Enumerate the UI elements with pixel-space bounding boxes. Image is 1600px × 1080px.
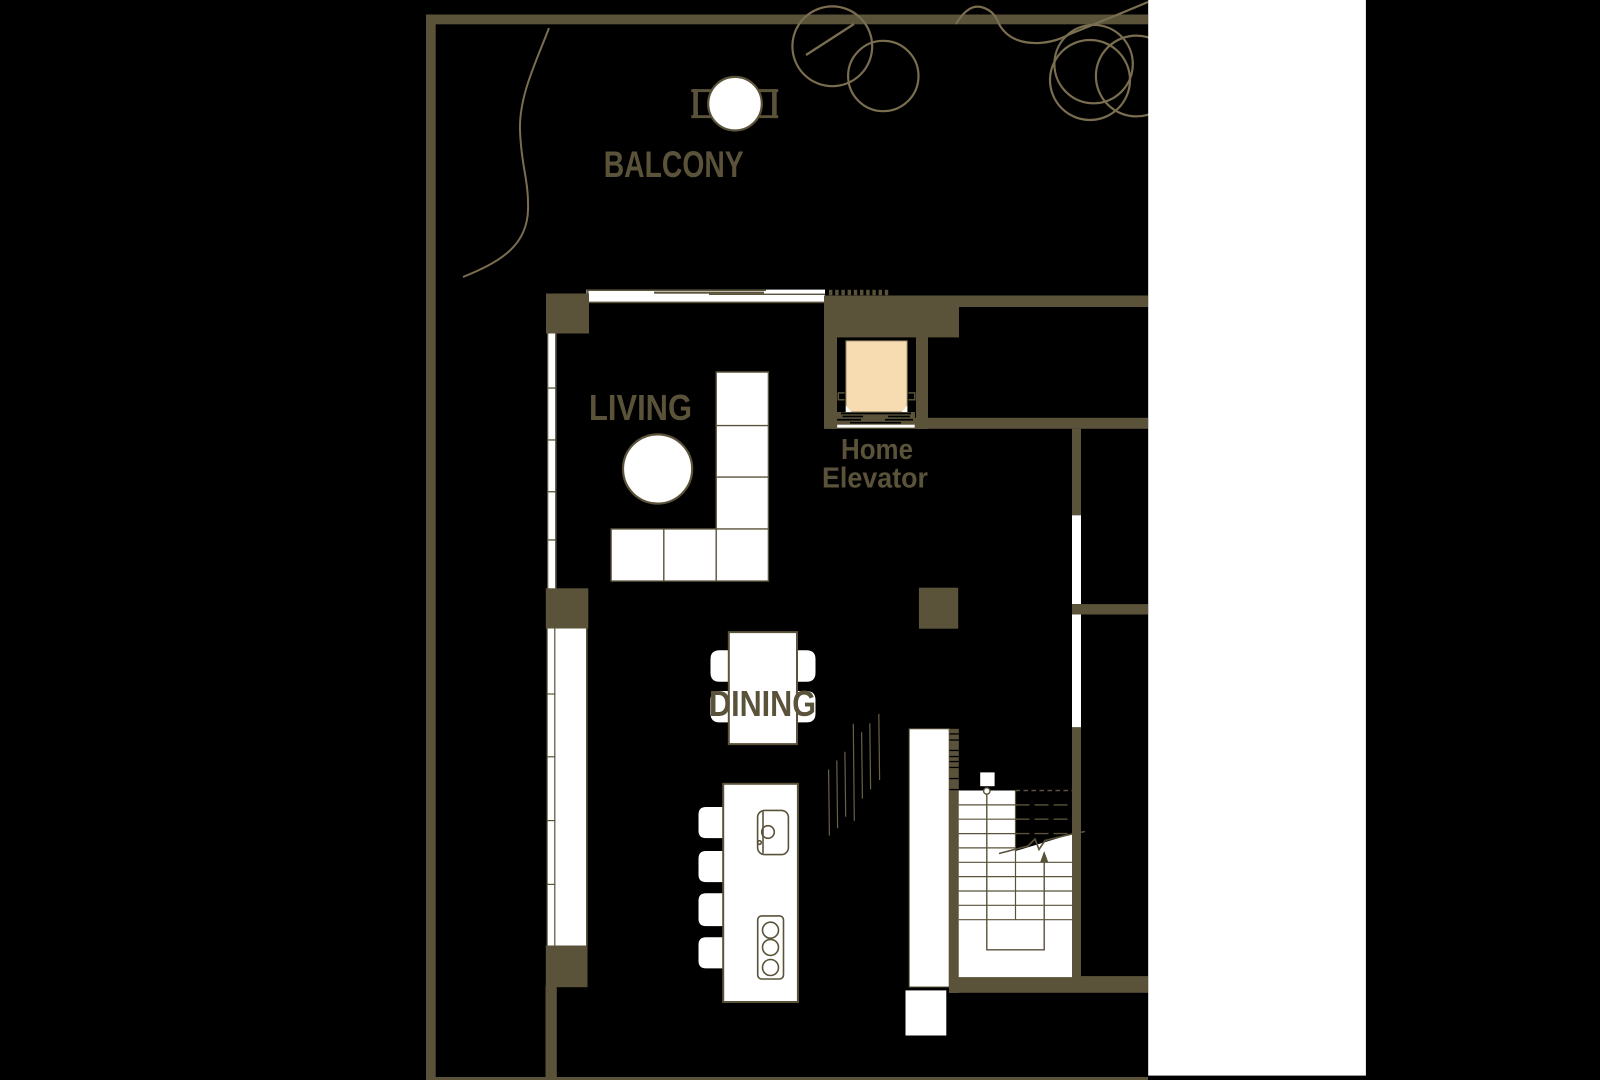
svg-text:Elevator: Elevator <box>822 463 928 495</box>
svg-text:DINING: DINING <box>709 683 816 724</box>
svg-text:LIVING: LIVING <box>589 387 692 428</box>
svg-text:BALCONY: BALCONY <box>604 144 744 185</box>
svg-text:Home: Home <box>841 434 913 466</box>
